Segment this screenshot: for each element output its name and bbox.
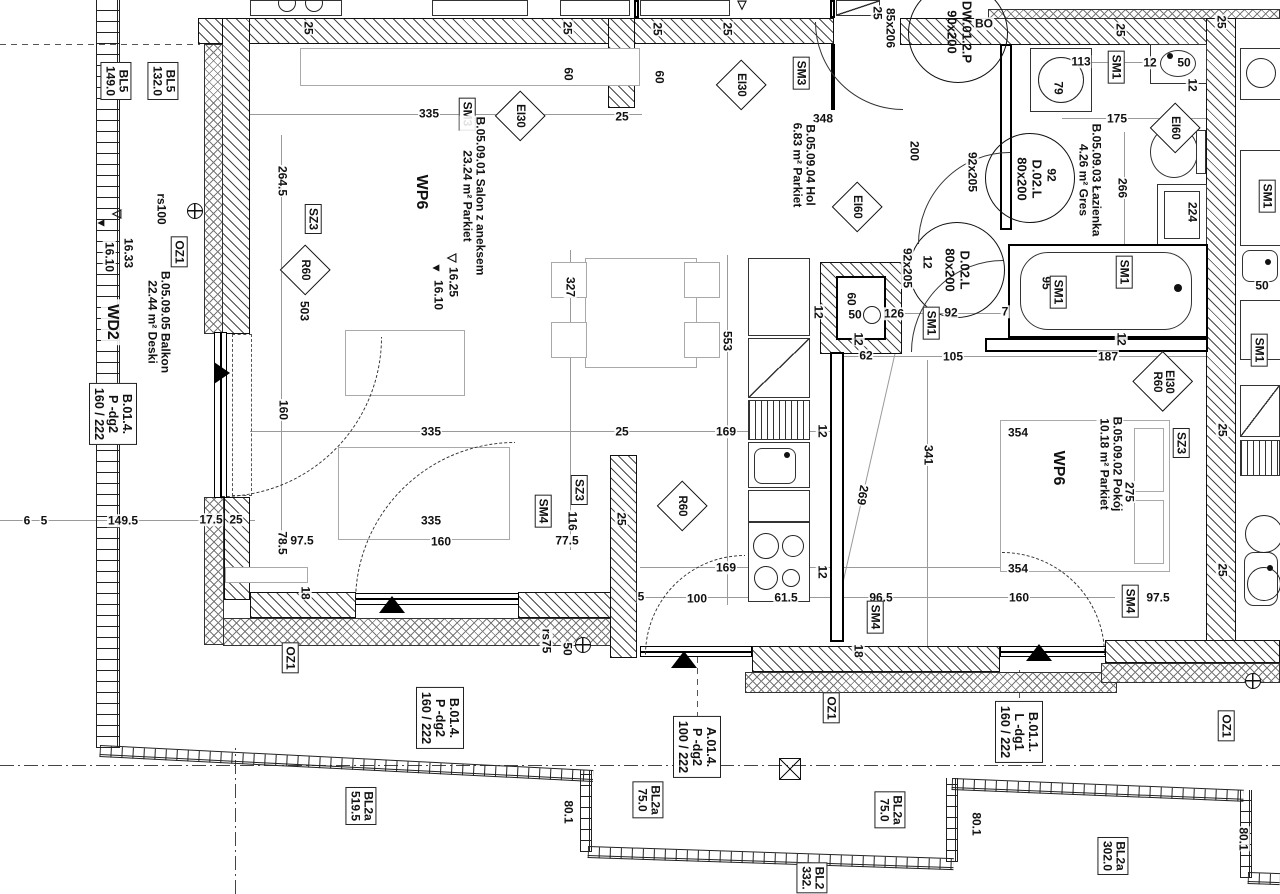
fixture-chair: [684, 262, 720, 298]
faucet: [1265, 259, 1271, 265]
dimension-label: 149.5: [107, 514, 139, 527]
tag-label: SM3: [792, 57, 809, 90]
rs-drain-symbol: [187, 203, 203, 219]
dimension-label: 60: [844, 291, 857, 306]
dimension-label: 85x206: [883, 7, 896, 49]
fire-rating-diamond: EI30: [715, 59, 767, 111]
dimension-label: 200: [907, 140, 920, 162]
balcony-railing: [588, 846, 954, 870]
dimension-label: 12: [1114, 331, 1127, 346]
hob-burner: [782, 569, 800, 587]
fixture-neighbor-sink: [1242, 250, 1278, 282]
room-label: B.05.09.04 Hol 6.83 m² Parkiet: [790, 122, 817, 209]
wall-segment: [204, 44, 223, 334]
fixture-bathtub-inner: [1020, 252, 1192, 330]
fixture-neighbor-counter: [640, 0, 730, 16]
dimension-label: 12: [811, 304, 824, 319]
balcony-railing: [580, 770, 592, 852]
tag-label: BL2a 75.0: [633, 781, 664, 818]
door-tag: B.01.1. L -dg1 160 / 222: [995, 701, 1043, 763]
dimension-label: 341: [921, 444, 934, 466]
dimension-label: 335: [420, 514, 442, 527]
dimension-label: 169: [715, 425, 737, 438]
dimension-label: 80.1: [969, 811, 982, 836]
fixture-dining-table: [585, 258, 697, 368]
wall-segment: [222, 18, 250, 334]
dimension-label: 12: [851, 331, 864, 346]
dimension-label: 275: [1122, 481, 1135, 503]
hob-burner: [782, 535, 804, 557]
tag-label: SM1: [1115, 256, 1132, 289]
fire-rating-diamond: EI30 R60: [1132, 351, 1194, 413]
fixture-kitchen-cabinet: [748, 258, 810, 336]
fixture-kitchen-counter: [748, 490, 810, 522]
tag-label: SM1: [922, 307, 939, 340]
tag-label: OZ1: [281, 642, 298, 673]
tag-label: BL2 332.: [797, 862, 828, 893]
neighbor-hob-burner: [1245, 515, 1280, 553]
door-bubble-label: D.02.L 80x200: [1014, 156, 1043, 201]
door-direction-arrow: [671, 651, 697, 668]
fixture-neighbor-counter: [432, 0, 528, 16]
dimension-label: 25: [1215, 422, 1228, 437]
hob-burner: [753, 533, 779, 559]
diamond-label: EI30 R60: [1151, 370, 1175, 394]
room-label: B.05.09.01 Salon z aneksem 23.24 m² Park…: [460, 116, 487, 277]
tag-label: BL5 132.0: [148, 62, 179, 100]
fixture-neighbor-fridge: [1240, 385, 1280, 437]
dimension-label: 25: [614, 425, 629, 438]
dimension-label: 92: [943, 306, 958, 319]
dimension-label: 327: [563, 276, 576, 298]
fixture-fridge: [748, 338, 810, 398]
balcony-railing: [1248, 872, 1280, 885]
dimension-label: 16.25: [446, 266, 459, 298]
dimension-label: ▽: [110, 208, 123, 219]
construction-line: [0, 765, 1280, 766]
fixture-salon-wardrobe: [300, 48, 640, 86]
dimension-label: 16.33: [121, 237, 134, 269]
dimension-label: 269: [853, 483, 870, 507]
dimension-label: 354: [1007, 426, 1029, 439]
door-direction-arrow: [379, 596, 405, 613]
dimension-label: 25: [1215, 562, 1228, 577]
dimension-label: 25: [614, 110, 629, 123]
dimension-label: 61.5: [773, 591, 798, 604]
fixture-neighbor-counter: [250, 0, 342, 16]
tag-label: SZ3: [570, 475, 587, 505]
door-direction-arrow: [214, 362, 230, 384]
dimension-label: 25: [870, 5, 883, 20]
dimension-label: 169: [715, 561, 737, 574]
dimension-label: 50: [847, 308, 862, 321]
dimension-label: 25: [720, 21, 733, 36]
dimension-label: 50: [1176, 56, 1191, 69]
dimension-label: 7: [1001, 305, 1010, 318]
fixture-pillow: [1134, 500, 1164, 564]
wall-segment: [518, 592, 612, 618]
dimension-label: 17.5: [198, 513, 223, 526]
dimension-label: 97.5: [1145, 591, 1170, 604]
diamond-label: EI30: [735, 73, 747, 97]
shaft-pipe: [863, 306, 881, 324]
dimension-label: 105: [942, 350, 964, 363]
dimension-label: 50: [1254, 279, 1269, 292]
wall-segment: [1206, 18, 1236, 645]
tag-label: SM1: [1250, 334, 1267, 367]
dimension-label: 100: [686, 592, 708, 605]
tag-label: SM4: [534, 495, 551, 528]
wall-segment: [752, 646, 1000, 672]
fixture-neighbor-counter: [560, 0, 630, 16]
rs-drain-symbol: [1245, 673, 1261, 689]
tag-label: SM4: [1121, 585, 1138, 618]
dimension-label: 175: [1106, 112, 1128, 125]
wall-segment: [1105, 640, 1280, 663]
dimension-label: 80.1: [1236, 826, 1249, 851]
dimension-label: 16.10: [102, 241, 115, 273]
fixture-dishwasher: [748, 400, 810, 440]
dimension-label: 264.5: [275, 165, 288, 197]
balcony-railing: [946, 778, 958, 862]
dimension-label: 503: [297, 300, 310, 322]
dimension-label: 25: [301, 20, 314, 35]
dimension-label: 12: [815, 423, 828, 438]
dimension-label: 335: [420, 425, 442, 438]
tag-label: SZ3: [1172, 428, 1189, 458]
fixture-chair: [551, 322, 587, 358]
dimension-label: 50: [560, 641, 573, 656]
fixture-chair: [684, 322, 720, 358]
dimension-label: 354: [1007, 562, 1029, 575]
fire-rating-diamond: R60: [656, 480, 708, 532]
crossed-square-symbol: [779, 758, 801, 780]
wall-segment: [988, 9, 1280, 19]
fixture-pillow: [1134, 428, 1164, 492]
tag-label: BL2a 302.0: [1098, 837, 1129, 875]
dimension-label: 12: [1142, 56, 1157, 69]
dimension-label: 25: [614, 511, 627, 526]
tag-label: SM1: [1049, 276, 1066, 309]
tag-label: OZ1: [170, 236, 187, 267]
fixture-tv-bench: [225, 567, 308, 583]
room-label: B.05.09.02 Pokój 10.18 m² Parkiet: [1097, 416, 1124, 513]
construction-line: [927, 360, 928, 650]
rs-drain-symbol: [575, 637, 591, 653]
dimension-label: 92: [1044, 167, 1057, 182]
faucet: [1174, 284, 1182, 292]
dimension-label: 12: [815, 564, 828, 579]
dimension-label: 25: [228, 513, 243, 526]
dimension-label: 6: [23, 514, 32, 527]
door-bubble-label: DW.01.2.P 90x200: [944, 0, 973, 64]
dimension-label: 60: [561, 66, 574, 81]
dimension-label: ▽: [445, 252, 458, 263]
dimension-label: 113: [1070, 55, 1091, 68]
dimension-label: 62: [858, 349, 873, 362]
dimension-label: 77.5: [554, 534, 579, 547]
fire-rating-diamond: EI60: [1149, 102, 1201, 154]
dimension-label: 16.10: [431, 279, 444, 311]
tag-label: BL2a 519.5: [346, 787, 377, 825]
dimension-label: 25: [560, 20, 573, 35]
floor-plan: EI30EI30EI60EI60R60R60EI30 R602533560252…: [0, 0, 1280, 894]
dimension-label: 335: [418, 107, 440, 120]
dimension-label: rs75: [539, 628, 552, 655]
dimension-label: 78.5: [275, 530, 288, 555]
construction-line: [250, 114, 642, 115]
balcony-railing: [99, 745, 593, 782]
dimension-label: 25: [1113, 22, 1126, 37]
tag-label: SM1: [1107, 51, 1124, 84]
dimension-label: 92x205: [965, 151, 978, 193]
door-tag: A.01.4. P -dg2 100 / 222: [673, 716, 721, 778]
diamond-label: R60: [676, 495, 688, 516]
diamond-label: EI30: [514, 104, 526, 128]
room-label: B.05.09.05 Balkon 22.44 m² Deski: [145, 270, 172, 374]
door-tag: B.01.4. P -dg2 160 / 222: [89, 383, 137, 445]
dimension-label: 116: [565, 510, 578, 531]
balcony-railing: [952, 778, 1244, 802]
tag-label: BL5 149.0: [101, 62, 132, 100]
dimension-label: 5: [637, 590, 646, 603]
dimension-label: rs100: [154, 192, 167, 225]
tag-label: OZ1: [822, 692, 839, 723]
diamond-label: EI60: [851, 195, 863, 219]
dimension-label: 160: [276, 399, 289, 421]
dimension-label: 160: [430, 535, 452, 548]
dimension-label: 266: [1115, 177, 1128, 199]
hob-burner: [754, 566, 778, 590]
dimension-label: 18: [851, 643, 864, 658]
dimension-label: 80.1: [561, 799, 574, 824]
faucet: [1267, 565, 1273, 571]
faucet: [784, 452, 790, 458]
neighbor-hob-burner: [1247, 567, 1280, 601]
tag-label: SZ3: [304, 204, 321, 234]
dimension-label: 12: [920, 254, 933, 269]
dimension-label: 18: [298, 585, 311, 600]
tag-label: SM4: [866, 601, 883, 634]
panel-tag: WP6: [410, 170, 432, 215]
door-tag: B.01.4. P -dg2 160 / 222: [416, 687, 464, 749]
door-bubble-label: D.02.L 80x200: [942, 247, 971, 292]
panel-tag: WP6: [1047, 446, 1069, 491]
fire-rating-diamond: R60: [279, 244, 331, 296]
wall-segment: [610, 455, 637, 658]
fixture-neighbor-dishwasher: [1240, 440, 1280, 476]
dimension-label: 60: [652, 69, 665, 84]
dimension-label: ▼: [94, 216, 107, 230]
dimension-label: 224: [1185, 201, 1198, 223]
dimension-label: 25: [1214, 14, 1227, 29]
dimension-label: 126: [883, 307, 905, 320]
construction-line: [235, 748, 236, 894]
panel-tag: WD2: [101, 299, 123, 345]
diamond-label: R60: [299, 259, 311, 280]
tag-label: BL2a 75.0: [875, 791, 906, 828]
door-direction-arrow: [1026, 644, 1052, 661]
room-label: B.05.09.03 Łazienka 4.26 m² Gres: [1076, 123, 1103, 238]
fire-rating-diamond: EI30: [494, 90, 546, 142]
dimension-label: 12: [1185, 77, 1198, 92]
dimension-label: 160: [1008, 591, 1030, 604]
dimension-label: 553: [720, 330, 733, 352]
tag-label: SM1: [1258, 180, 1275, 213]
dimension-label: 5: [40, 514, 49, 527]
neighbor-washer-drum: [1246, 58, 1276, 88]
dimension-label: 97.5: [289, 534, 314, 547]
diamond-label: EI60: [1169, 116, 1181, 140]
wall-segment: [634, 0, 639, 18]
tag-label: OZ1: [1217, 710, 1234, 741]
wall-segment: [830, 0, 835, 18]
dimension-label: ▼: [429, 261, 442, 275]
dimension-label: BO: [974, 17, 994, 30]
dimension-label: 187: [1097, 350, 1119, 363]
balcony-railing: [96, 0, 120, 748]
fire-rating-diamond: EI60: [831, 181, 883, 233]
faucet: [1167, 53, 1173, 59]
wall-segment: [745, 672, 1117, 693]
dimension-label: 92x205: [900, 247, 913, 289]
dimension-label: 79: [1051, 80, 1064, 95]
wall-segment: [830, 352, 844, 642]
dimension-label: 25: [650, 21, 663, 36]
dimension-label: ▽: [736, 0, 747, 12]
